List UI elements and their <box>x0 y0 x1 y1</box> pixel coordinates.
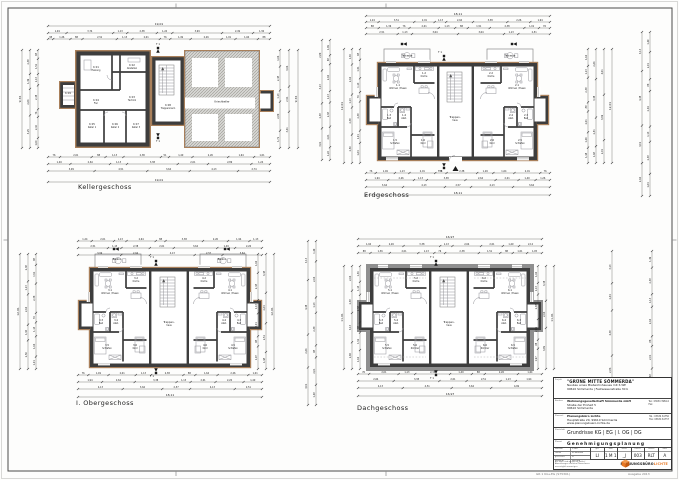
eg-building <box>366 42 549 171</box>
svg-text:38: 38 <box>49 36 52 39</box>
svg-text:Wohnen / Essen: Wohnen / Essen <box>501 292 519 295</box>
svg-text:Bad: Bad <box>379 322 384 325</box>
svg-text:3,38: 3,38 <box>182 238 188 241</box>
svg-text:1,24: 1,24 <box>162 30 168 33</box>
svg-text:1,97: 1,97 <box>535 356 538 362</box>
svg-text:88: 88 <box>649 339 652 342</box>
svg-text:1,13: 1,13 <box>122 36 128 39</box>
svg-text:88: 88 <box>313 349 316 352</box>
svg-text:T 1: T 1 <box>156 42 160 46</box>
entrance-marker <box>453 166 459 171</box>
svg-text:1,26: 1,26 <box>540 177 546 180</box>
svg-text:2,64: 2,64 <box>593 61 596 67</box>
svg-text:1,49: 1,49 <box>313 248 316 254</box>
svg-text:4,38: 4,38 <box>609 330 612 336</box>
svg-text:2,01: 2,01 <box>255 322 258 328</box>
svg-text:88: 88 <box>477 371 480 374</box>
svg-text:1,64: 1,64 <box>255 260 258 266</box>
svg-text:Keller 3: Keller 3 <box>132 126 141 129</box>
svg-text:3,64: 3,64 <box>432 31 438 34</box>
svg-text:3,61: 3,61 <box>286 127 289 133</box>
svg-text:Schlafen: Schlafen <box>382 347 392 350</box>
svg-text:1,13: 1,13 <box>400 170 406 173</box>
svg-text:2,89: 2,89 <box>319 52 322 58</box>
title-obergeschoss: I. Obergeschoss <box>76 399 134 407</box>
svg-text:2,64: 2,64 <box>349 76 352 82</box>
svg-text:Schlafen: Schlafen <box>508 347 518 350</box>
svg-text:1,49: 1,49 <box>647 39 650 45</box>
svg-text:2,01: 2,01 <box>505 177 511 180</box>
svg-text:1,13: 1,13 <box>327 94 330 100</box>
svg-text:2,01: 2,01 <box>73 154 79 157</box>
svg-text:1,49: 1,49 <box>55 30 61 33</box>
logo-cube-icon <box>621 459 630 468</box>
svg-text:1,13: 1,13 <box>585 69 588 75</box>
svg-text:88: 88 <box>159 238 162 241</box>
svg-text:1,64: 1,64 <box>357 150 360 156</box>
svg-text:Wohnen / Essen: Wohnen / Essen <box>381 292 399 295</box>
svg-text:1,49: 1,49 <box>250 379 256 382</box>
meta-cell-value: 1 M 1 <box>605 452 618 460</box>
svg-text:Treppenraum: Treppenraum <box>161 107 175 110</box>
svg-text:2,01: 2,01 <box>201 379 207 382</box>
svg-text:2,51: 2,51 <box>481 378 487 381</box>
note-line: unverzüglich anzuzeigen. <box>555 466 601 468</box>
tb-logo-row: Alle Maße sind am Bau zu prüfen! Abweich… <box>554 460 671 471</box>
svg-text:Abst.: Abst. <box>501 322 507 325</box>
tb-notes: Alle Maße sind am Bau zu prüfen! Abweich… <box>555 461 601 468</box>
svg-text:Wohnen / Essen: Wohnen / Essen <box>389 87 407 90</box>
tb-meta-row: Maßstab1:100 Datum21.06.2018 gezeichnetL… <box>554 448 671 460</box>
svg-text:18,11: 18,11 <box>166 393 175 397</box>
svg-text:2,01: 2,01 <box>401 250 407 253</box>
svg-text:1,13: 1,13 <box>25 285 28 291</box>
svg-text:2,64: 2,64 <box>25 306 28 312</box>
tb-project-label: Projekt <box>555 379 566 382</box>
svg-text:2,01: 2,01 <box>489 243 495 246</box>
svg-text:2,38: 2,38 <box>33 295 36 301</box>
planner-web: www.planungsbuero-lichte.de <box>567 422 669 426</box>
plan-erdgeschoss: 18,111,243,512,011,132,643,382,261,94881… <box>336 10 676 220</box>
svg-text:1,01: 1,01 <box>226 36 232 39</box>
svg-text:2,50: 2,50 <box>349 146 352 152</box>
svg-text:1,49: 1,49 <box>649 256 652 262</box>
svg-text:3,51: 3,51 <box>394 19 400 22</box>
svg-text:1,13: 1,13 <box>438 19 444 22</box>
svg-text:4,38: 4,38 <box>305 304 308 310</box>
svg-text:2,26: 2,26 <box>246 245 252 248</box>
svg-text:1,13: 1,13 <box>444 243 450 246</box>
svg-text:2,64: 2,64 <box>133 252 139 255</box>
svg-text:1,64: 1,64 <box>535 271 538 277</box>
svg-text:2,38: 2,38 <box>313 326 316 332</box>
svg-text:2,38: 2,38 <box>319 113 322 119</box>
title-kellergeschoss: Kellergeschoss <box>78 183 132 191</box>
svg-text:2,64: 2,64 <box>263 305 266 311</box>
tb-content-row: Planinhalt Grundrisse KG | EG | I. OG | … <box>554 428 671 440</box>
svg-text:2,26: 2,26 <box>213 238 219 241</box>
svg-text:1,64: 1,64 <box>585 54 588 60</box>
svg-text:1,13: 1,13 <box>418 177 424 180</box>
svg-text:Küche: Küche <box>201 280 208 283</box>
kg-building <box>59 47 274 148</box>
svg-text:9,76: 9,76 <box>294 96 298 103</box>
svg-text:2,38: 2,38 <box>27 59 30 65</box>
svg-text:11,01: 11,01 <box>550 313 554 322</box>
svg-text:Küche: Küche <box>413 280 420 283</box>
svg-text:T 1: T 1 <box>430 376 434 380</box>
meta-cell-value: 003 <box>632 452 645 460</box>
svg-text:2,01: 2,01 <box>190 161 196 164</box>
svg-text:1,49: 1,49 <box>57 161 63 164</box>
svg-text:2,38: 2,38 <box>327 112 330 118</box>
svg-text:1,13: 1,13 <box>424 250 430 253</box>
svg-text:76: 76 <box>35 111 38 114</box>
svg-text:88: 88 <box>35 52 38 55</box>
meta-val: 1:100 <box>571 448 577 451</box>
svg-text:4,13: 4,13 <box>489 184 495 187</box>
svg-text:2,51: 2,51 <box>593 129 596 135</box>
svg-text:2,51: 2,51 <box>532 31 538 34</box>
svg-text:1,49: 1,49 <box>27 78 30 84</box>
svg-text:T 1: T 1 <box>430 255 434 259</box>
svg-text:Terrasse: Terrasse <box>505 54 516 58</box>
svg-text:3,99: 3,99 <box>601 114 604 120</box>
svg-text:Schlafen: Schlafen <box>228 347 238 350</box>
svg-text:1,51: 1,51 <box>33 271 36 277</box>
svg-text:Keller 2: Keller 2 <box>111 126 120 129</box>
svg-text:1,64: 1,64 <box>33 343 36 349</box>
svg-text:Kriechkeller: Kriechkeller <box>214 100 230 104</box>
svg-text:3,01: 3,01 <box>319 141 322 147</box>
project-line3: 99610 Sömmerda | Festwiesenstraße 30 b <box>567 388 669 392</box>
svg-text:1,94: 1,94 <box>375 177 381 180</box>
svg-text:1,49: 1,49 <box>458 371 464 374</box>
svg-text:3,64: 3,64 <box>193 245 199 248</box>
svg-text:2,74: 2,74 <box>251 168 257 171</box>
svg-text:3,64: 3,64 <box>140 386 146 389</box>
svg-text:2,38: 2,38 <box>357 113 360 119</box>
plan-phase: Genehmigungsplanung <box>567 441 669 448</box>
meta-key: Datum <box>554 452 571 455</box>
svg-text:88: 88 <box>363 250 366 253</box>
svg-text:1,13: 1,13 <box>277 93 280 99</box>
svg-text:76: 76 <box>403 25 406 28</box>
svg-text:1,13: 1,13 <box>402 31 408 34</box>
svg-text:Abst.: Abst. <box>113 322 119 325</box>
svg-text:Technik: Technik <box>128 99 137 102</box>
svg-text:T 1: T 1 <box>150 374 154 378</box>
meta-cell-value: RLT <box>645 452 658 460</box>
svg-text:2,57: 2,57 <box>174 386 180 389</box>
svg-text:4,13: 4,13 <box>378 385 384 388</box>
svg-text:2,57: 2,57 <box>455 184 461 187</box>
svg-text:1,13: 1,13 <box>509 31 515 34</box>
svg-text:Wohnen / Essen: Wohnen / Essen <box>221 292 239 295</box>
meta-key: gezeichnet <box>554 456 571 459</box>
svg-text:2,38: 2,38 <box>133 245 139 248</box>
svg-text:19,01: 19,01 <box>155 178 164 182</box>
svg-text:3,38: 3,38 <box>593 95 596 101</box>
svg-text:16,97: 16,97 <box>446 235 455 239</box>
svg-text:88: 88 <box>75 36 78 39</box>
svg-text:2,38: 2,38 <box>585 87 588 93</box>
svg-text:2,38: 2,38 <box>349 299 352 305</box>
svg-text:1,13: 1,13 <box>141 372 147 375</box>
svg-text:2,51: 2,51 <box>246 386 252 389</box>
svg-text:1,94: 1,94 <box>538 19 544 22</box>
tb-planner-row: Planverf. Planungsbüro Lichte Hauptstraß… <box>554 414 671 428</box>
plan-content: Grundrisse KG | EG | I. OG | DG <box>567 429 669 437</box>
svg-text:2,38: 2,38 <box>459 170 465 173</box>
svg-text:2,51: 2,51 <box>263 334 266 340</box>
svg-text:2,86: 2,86 <box>349 353 352 359</box>
svg-text:Kind: Kind <box>133 347 138 350</box>
meta-cells: gez.LI Blatt1 M 1 Status_J Plan-Nr.003 G… <box>591 448 671 459</box>
logo-text-2: LICHTE <box>654 462 668 466</box>
svg-text:19,01: 19,01 <box>155 22 164 26</box>
meta-table: Maßstab1:100 Datum21.06.2018 gezeichnetL… <box>554 448 591 459</box>
svg-text:2,01: 2,01 <box>450 378 456 381</box>
svg-text:1,13: 1,13 <box>112 245 118 248</box>
svg-text:2,01: 2,01 <box>381 371 387 374</box>
svg-text:2,57: 2,57 <box>206 252 212 255</box>
svg-text:Bad: Bad <box>237 322 242 325</box>
svg-text:1,13: 1,13 <box>313 302 316 308</box>
svg-text:1,64: 1,64 <box>647 182 650 188</box>
client-city: 99610 Sömmerda <box>567 407 669 411</box>
svg-text:1,13: 1,13 <box>535 286 538 292</box>
meta-val: 21.06.2018 <box>571 452 583 455</box>
svg-text:2,51: 2,51 <box>286 96 289 102</box>
svg-text:2,64: 2,64 <box>27 99 30 105</box>
svg-text:1,49: 1,49 <box>327 44 330 50</box>
svg-text:76: 76 <box>82 372 85 375</box>
svg-text:2,38: 2,38 <box>277 75 280 81</box>
svg-text:1,94: 1,94 <box>87 379 93 382</box>
svg-text:2,38: 2,38 <box>504 25 510 28</box>
svg-text:2,38: 2,38 <box>349 118 352 124</box>
svg-text:16,97: 16,97 <box>446 392 455 396</box>
svg-text:2,64: 2,64 <box>647 106 650 112</box>
svg-text:76: 76 <box>357 95 360 98</box>
svg-text:2,01: 2,01 <box>420 170 426 173</box>
svg-text:1,97: 1,97 <box>255 355 258 361</box>
svg-text:2,50: 2,50 <box>25 352 28 358</box>
svg-text:1,49: 1,49 <box>178 36 184 39</box>
svg-text:Balkon: Balkon <box>218 257 227 261</box>
drawing-sheet: 19,011,493,741,132,381,243,992,491,36381… <box>0 0 679 480</box>
svg-text:76: 76 <box>369 170 372 173</box>
svg-text:1,13: 1,13 <box>647 131 650 137</box>
svg-text:3,01: 3,01 <box>305 383 308 389</box>
svg-text:1,26: 1,26 <box>59 36 65 39</box>
svg-text:1,36: 1,36 <box>357 271 360 277</box>
svg-text:2,01: 2,01 <box>327 134 330 140</box>
svg-text:Schlafen: Schlafen <box>102 347 112 350</box>
svg-text:2,89: 2,89 <box>227 161 233 164</box>
svg-text:Balkon: Balkon <box>113 257 122 261</box>
svg-text:1,13: 1,13 <box>181 379 187 382</box>
svg-text:4,01: 4,01 <box>601 69 604 75</box>
svg-text:88: 88 <box>97 154 100 157</box>
dg-building <box>357 260 543 376</box>
svg-text:2,64: 2,64 <box>116 379 122 382</box>
tb-project-row: Projekt "GRÜNE MITTE SÖMMERDA" Neubau ei… <box>554 378 671 399</box>
svg-text:9,76: 9,76 <box>18 96 22 103</box>
svg-text:2,26: 2,26 <box>516 19 522 22</box>
svg-text:T 1: T 1 <box>438 169 442 173</box>
client-fax: Fax: <box>649 403 653 406</box>
svg-text:2,01: 2,01 <box>120 372 126 375</box>
svg-text:Küche: Küche <box>421 75 428 78</box>
svg-text:18,11: 18,11 <box>454 12 463 16</box>
svg-text:Keller 1: Keller 1 <box>88 126 97 129</box>
svg-text:2,38: 2,38 <box>357 305 360 311</box>
svg-text:2,01: 2,01 <box>100 238 106 241</box>
svg-text:Abst.: Abst. <box>401 117 407 120</box>
svg-text:12,01: 12,01 <box>340 102 344 111</box>
svg-text:1,51: 1,51 <box>487 250 493 253</box>
svg-text:2,01: 2,01 <box>159 245 165 248</box>
svg-text:3,38: 3,38 <box>543 280 546 286</box>
svg-text:Kind: Kind <box>490 142 495 145</box>
svg-text:2,64: 2,64 <box>327 74 330 80</box>
svg-text:76: 76 <box>438 250 441 253</box>
svg-text:2,01: 2,01 <box>649 354 652 360</box>
svg-text:1,13: 1,13 <box>118 238 124 241</box>
svg-text:3,13: 3,13 <box>639 48 642 54</box>
svg-text:2,12: 2,12 <box>528 243 534 246</box>
svg-text:2,26: 2,26 <box>208 154 214 157</box>
svg-text:1,13: 1,13 <box>649 297 652 303</box>
svg-text:1,64: 1,64 <box>527 371 533 374</box>
plan-kellergeschoss: 19,011,493,741,132,381,243,992,491,36381… <box>8 10 332 215</box>
svg-text:1,48: 1,48 <box>313 392 316 398</box>
svg-text:76: 76 <box>362 371 365 374</box>
svg-text:3,38: 3,38 <box>414 378 420 381</box>
svg-text:2,10: 2,10 <box>35 124 38 130</box>
svg-text:88: 88 <box>585 105 588 108</box>
svg-text:1,94: 1,94 <box>526 378 532 381</box>
svg-text:3,74: 3,74 <box>87 30 93 33</box>
svg-text:1,13: 1,13 <box>253 238 259 241</box>
svg-text:2,26: 2,26 <box>227 379 233 382</box>
svg-text:2,26: 2,26 <box>204 36 210 39</box>
svg-text:T 1: T 1 <box>150 255 154 259</box>
svg-text:1,36: 1,36 <box>378 250 384 253</box>
svg-text:Küche: Küche <box>481 280 488 283</box>
meta-cell-value: A <box>659 452 672 460</box>
svg-text:1,51: 1,51 <box>357 66 360 72</box>
svg-text:2,64: 2,64 <box>649 318 652 324</box>
tb-client-label: Bauherr <box>555 400 566 403</box>
svg-text:2,51: 2,51 <box>379 31 385 34</box>
svg-text:1,00: 1,00 <box>35 140 38 146</box>
svg-text:1,01: 1,01 <box>357 134 360 140</box>
svg-text:2,01: 2,01 <box>525 170 531 173</box>
svg-text:12,01: 12,01 <box>270 307 274 316</box>
svg-text:1,13: 1,13 <box>357 82 360 88</box>
svg-text:1,94: 1,94 <box>366 243 372 246</box>
svg-text:76: 76 <box>543 25 546 28</box>
plan-obergeschoss: 1,242,011,132,64883,382,261,941,132,511,… <box>8 233 340 433</box>
svg-text:Abst.: Abst. <box>221 322 227 325</box>
svg-text:88: 88 <box>371 25 374 28</box>
svg-text:1,24: 1,24 <box>370 19 376 22</box>
svg-text:2,01: 2,01 <box>585 119 588 125</box>
svg-text:88: 88 <box>647 83 650 86</box>
tb-content-label: Planinhalt <box>555 429 566 432</box>
svg-text:1,01: 1,01 <box>33 360 36 366</box>
svg-text:3,38: 3,38 <box>263 270 266 276</box>
svg-text:3,99: 3,99 <box>97 252 103 255</box>
svg-text:1,49: 1,49 <box>224 245 230 248</box>
svg-text:Bad: Bad <box>524 117 529 120</box>
svg-text:1,13: 1,13 <box>112 154 118 157</box>
svg-text:haus: haus <box>452 119 458 122</box>
svg-text:2,01: 2,01 <box>647 63 650 69</box>
svg-text:1,01: 1,01 <box>529 25 535 28</box>
svg-text:1,13: 1,13 <box>357 285 360 291</box>
svg-text:Wohnen / Essen: Wohnen / Essen <box>508 87 526 90</box>
svg-text:3,13: 3,13 <box>305 257 308 263</box>
svg-text:3,38: 3,38 <box>419 243 425 246</box>
svg-text:1,13: 1,13 <box>349 98 352 104</box>
svg-text:1,64: 1,64 <box>244 36 250 39</box>
og-annotations: 1,242,011,132,64883,382,261,941,132,511,… <box>16 238 317 406</box>
svg-text:Kind: Kind <box>203 347 208 350</box>
svg-text:2,64: 2,64 <box>305 348 308 354</box>
svg-text:2,01: 2,01 <box>422 19 428 22</box>
svg-text:88: 88 <box>188 372 191 375</box>
svg-text:3,13: 3,13 <box>319 84 322 90</box>
svg-text:2,01: 2,01 <box>601 148 604 154</box>
svg-text:Zimmer: Zimmer <box>411 347 420 350</box>
svg-text:haus: haus <box>166 324 172 327</box>
meta-cell-value: LI <box>591 452 604 460</box>
svg-text:1,48: 1,48 <box>593 151 596 157</box>
svg-text:Schlafen: Schlafen <box>515 142 525 145</box>
svg-text:1,13: 1,13 <box>35 77 38 83</box>
tb-client-row: Bauherr Wohnungsgesellschaft Sömmerda mb… <box>554 399 671 414</box>
svg-text:1,26: 1,26 <box>327 150 330 156</box>
svg-text:2,38: 2,38 <box>430 371 436 374</box>
svg-text:76: 76 <box>53 154 56 157</box>
svg-text:Schlafen: Schlafen <box>390 142 400 145</box>
svg-text:2,38: 2,38 <box>255 283 258 289</box>
svg-text:3,13: 3,13 <box>609 264 612 270</box>
svg-text:Abst.: Abst. <box>393 322 399 325</box>
svg-text:2,64: 2,64 <box>313 276 316 282</box>
svg-text:2,64: 2,64 <box>639 176 642 182</box>
svg-text:88: 88 <box>535 342 538 345</box>
svg-text:2,38: 2,38 <box>140 154 146 157</box>
tb-planner-label: Planverf. <box>555 415 566 418</box>
title-dachgeschoss: Dachgeschoss <box>357 404 408 412</box>
svg-text:1,13: 1,13 <box>404 371 410 374</box>
svg-text:2,38: 2,38 <box>139 30 145 33</box>
svg-text:2,01: 2,01 <box>313 368 316 374</box>
svg-text:2,64: 2,64 <box>543 311 546 317</box>
svg-text:1,13: 1,13 <box>116 161 122 164</box>
svg-text:3,99: 3,99 <box>195 30 201 33</box>
svg-text:2,01: 2,01 <box>535 326 538 332</box>
svg-text:2,01: 2,01 <box>422 25 428 28</box>
svg-text:2,38: 2,38 <box>647 155 650 161</box>
svg-text:3,64: 3,64 <box>469 385 475 388</box>
svg-text:76: 76 <box>544 170 547 173</box>
